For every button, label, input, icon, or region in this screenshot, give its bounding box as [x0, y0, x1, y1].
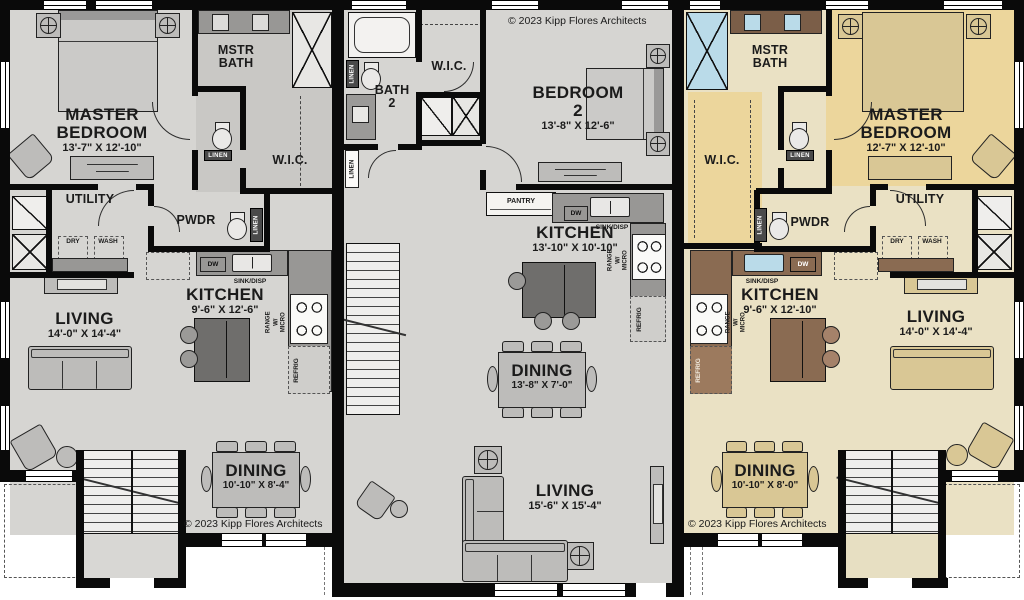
window: [26, 470, 72, 482]
wall: [826, 10, 832, 96]
wall: [890, 272, 1014, 278]
round-table: [390, 500, 408, 518]
label-linen: LINEN: [345, 150, 359, 188]
dining-chair: [754, 441, 775, 452]
dining-chair: [586, 366, 597, 392]
wall: [416, 10, 422, 62]
dresser-middle: [538, 162, 622, 182]
wall: [148, 246, 270, 252]
dining-table-left: [212, 452, 300, 508]
kitchen-sink-icon: [232, 254, 272, 272]
window: [0, 406, 10, 450]
cooktop-icon: [690, 294, 728, 344]
window: [492, 0, 538, 10]
kitchen-island: [770, 318, 826, 382]
label-linen: LINEN: [754, 208, 767, 242]
bed-middle-bedroom2: [586, 68, 664, 140]
wall: [926, 184, 1014, 190]
front-door-opening: [110, 578, 154, 588]
window: [222, 533, 262, 547]
utility-sink-icon: [976, 196, 1012, 230]
wall: [148, 184, 154, 206]
ceiling-fan-icon: [155, 13, 180, 38]
ceiling-fan-icon: [646, 44, 670, 68]
stool: [534, 312, 552, 330]
wall: [416, 140, 482, 146]
round-table: [946, 444, 968, 466]
wall: [756, 188, 832, 194]
wall: [46, 190, 52, 272]
window: [826, 0, 868, 10]
wall: [778, 88, 784, 150]
staircase-middle-unit: [346, 243, 400, 415]
shelving-icon: [12, 234, 48, 270]
kitchen-island: [194, 318, 250, 382]
wall: [838, 450, 846, 586]
sofa-left: [28, 346, 132, 390]
label-linen: LINEN: [250, 208, 263, 242]
label-linen: LINEN: [204, 150, 232, 161]
dining-chair: [754, 507, 775, 518]
laundry-counter: [878, 258, 954, 272]
sofa-right: [890, 346, 994, 390]
kitchen-sink-icon: [744, 254, 784, 272]
shelving-icon: [976, 234, 1012, 270]
front-door-opening: [636, 583, 666, 597]
label-linen: LINEN: [346, 60, 359, 88]
label-refrig: REFRIG: [289, 348, 303, 392]
stool: [508, 272, 526, 290]
dining-chair: [274, 507, 296, 518]
dining-chair: [502, 407, 524, 418]
label-range: RANGE W/ MICRO: [610, 236, 628, 284]
porch-outline-right: [944, 484, 1020, 578]
tv-middle: [650, 466, 664, 544]
sink-icon: [744, 14, 761, 31]
window: [952, 470, 998, 482]
dining-chair: [531, 407, 553, 418]
wall: [938, 450, 946, 586]
wall: [196, 86, 246, 92]
dining-chair: [782, 441, 803, 452]
window: [44, 0, 86, 10]
patio-dashed-line: [702, 547, 704, 595]
window: [1014, 302, 1024, 358]
sink-icon: [784, 14, 801, 31]
label-wash: WASH: [916, 238, 948, 245]
window: [1014, 62, 1024, 128]
window: [762, 533, 802, 547]
label-range: RANGE W/ MICRO: [728, 296, 746, 348]
wall: [684, 243, 762, 249]
dining-chair: [726, 441, 747, 452]
ceiling-fan-icon: [966, 14, 991, 39]
dining-chair: [487, 366, 498, 392]
dining-chair: [216, 441, 238, 452]
label-wash: WASH: [92, 238, 124, 245]
patio-dashed-line: [690, 547, 692, 595]
window: [563, 583, 625, 597]
ceiling-fan-icon: [838, 14, 863, 39]
dining-chair: [216, 507, 238, 518]
wall: [516, 184, 676, 190]
wall: [972, 190, 978, 272]
dishwasher: DW: [200, 257, 226, 272]
closet-rod: [420, 24, 478, 26]
sink-icon: [212, 14, 229, 31]
wall: [10, 184, 98, 190]
sink-icon: [352, 106, 369, 123]
bathtub-icon: [348, 12, 416, 58]
cooktop-icon: [632, 234, 666, 280]
copyright-left: © 2023 Kipp Flores Architects: [184, 518, 322, 530]
shower-icon: [420, 96, 452, 136]
wall: [778, 86, 828, 92]
wall: [870, 184, 876, 206]
wall: [332, 10, 344, 595]
toilet-icon: [768, 212, 790, 240]
wall: [240, 88, 246, 150]
dining-chair: [560, 407, 582, 418]
cooktop-icon: [290, 294, 328, 344]
toilet-icon: [788, 122, 810, 150]
bed-left-master: [58, 10, 158, 112]
laundry-counter: [52, 258, 128, 272]
cased-opening: [834, 252, 878, 280]
wall: [240, 188, 332, 194]
kitchen-island: [522, 262, 596, 318]
stool: [822, 350, 840, 368]
dining-chair: [300, 466, 311, 492]
dining-table-right: [722, 452, 808, 508]
stool: [180, 350, 198, 368]
label-sink-disp: SINK/DISP: [584, 224, 640, 231]
closet-rod: [300, 96, 302, 186]
label-sink-disp: SINK/DISP: [734, 278, 790, 285]
shelving-icon: [452, 96, 480, 136]
window: [495, 583, 557, 597]
dining-chair: [274, 441, 296, 452]
wall: [10, 272, 134, 278]
round-table: [56, 446, 78, 468]
closet-rod: [750, 100, 752, 238]
cased-opening: [146, 252, 190, 280]
wall: [416, 96, 422, 140]
window: [944, 0, 1002, 10]
ceiling-fan-icon: [646, 132, 670, 156]
stair-landing-right: [842, 532, 940, 578]
dining-chair: [560, 341, 582, 352]
window: [0, 302, 10, 358]
wall: [264, 190, 270, 246]
label-dry: DRY: [884, 238, 910, 245]
wall: [416, 92, 482, 98]
side-table-icon: [566, 542, 594, 570]
window: [718, 533, 758, 547]
window: [96, 0, 152, 10]
utility-sink-icon: [12, 196, 48, 230]
dining-chair: [201, 466, 212, 492]
dining-chair: [531, 341, 553, 352]
label-pantry: PANTRY: [488, 198, 554, 206]
side-table-icon: [474, 446, 502, 474]
window: [266, 533, 306, 547]
toilet-icon: [211, 122, 233, 150]
wall: [76, 450, 84, 586]
copyright-right: © 2023 Kipp Flores Architects: [688, 518, 826, 530]
floor-plan-canvas: DW DW: [0, 0, 1024, 600]
stool: [180, 326, 198, 344]
staircase-right-unit: [842, 450, 940, 534]
wall: [826, 150, 832, 190]
dining-chair: [782, 507, 803, 518]
patio-dashed-line: [324, 547, 326, 595]
wall: [398, 144, 422, 150]
dining-chair: [245, 441, 267, 452]
toilet-icon: [360, 62, 382, 90]
dining-chair: [726, 507, 747, 518]
window: [352, 0, 406, 10]
copyright-top: © 2023 Kipp Flores Architects: [508, 15, 646, 27]
closet-rod: [694, 100, 696, 238]
dining-table-middle: [498, 352, 586, 408]
dresser-left: [70, 156, 154, 180]
porch-outline-left: [4, 484, 80, 578]
label-dry: DRY: [60, 238, 86, 245]
stool: [562, 312, 580, 330]
wall: [754, 246, 876, 252]
staircase-left-unit: [82, 450, 180, 534]
dining-chair: [711, 466, 722, 492]
bed-right-master: [862, 12, 964, 112]
dining-chair: [245, 507, 267, 518]
dining-chair: [808, 466, 819, 492]
window: [622, 0, 668, 10]
stool: [822, 326, 840, 344]
window: [1014, 406, 1024, 450]
stair-landing-left: [82, 532, 180, 578]
kitchen-sink-icon: [590, 197, 630, 217]
label-range: RANGE W/ MICRO: [268, 296, 286, 348]
dresser-right: [868, 156, 952, 180]
window: [690, 0, 720, 10]
label-refrig: REFRIG: [691, 348, 705, 392]
window: [0, 62, 10, 128]
dishwasher: DW: [564, 206, 588, 221]
wall: [192, 150, 198, 190]
shower-icon: [686, 12, 728, 90]
sink-icon: [252, 14, 269, 31]
label-refrig: REFRIG: [632, 298, 646, 340]
label-sink-disp: SINK/DISP: [222, 278, 278, 285]
wall: [192, 10, 198, 96]
ceiling-fan-icon: [36, 13, 61, 38]
sectional-sofa-middle: [462, 540, 568, 582]
dishwasher: DW: [790, 257, 816, 272]
front-door-opening: [868, 578, 912, 588]
label-linen: LINEN: [786, 150, 814, 161]
shower-icon: [292, 12, 332, 88]
dining-chair: [502, 341, 524, 352]
toilet-icon: [226, 212, 248, 240]
wall: [480, 10, 486, 144]
wall: [672, 10, 684, 595]
